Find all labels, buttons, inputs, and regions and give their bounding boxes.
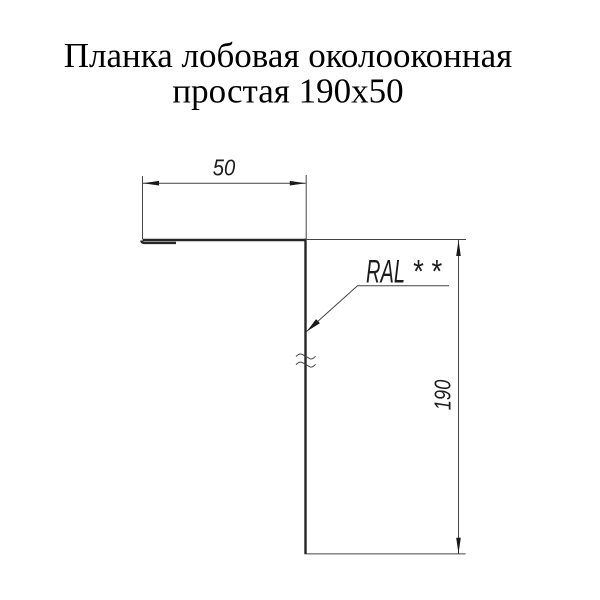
svg-text:190: 190 bbox=[430, 380, 456, 411]
svg-text:* *: * * bbox=[412, 254, 442, 290]
svg-text:50: 50 bbox=[213, 154, 236, 180]
svg-text:RAL: RAL bbox=[366, 254, 405, 290]
svg-text:Планка лобовая околооконная: Планка лобовая околооконная bbox=[64, 36, 513, 75]
svg-text:простая 190х50: простая 190х50 bbox=[172, 72, 403, 111]
